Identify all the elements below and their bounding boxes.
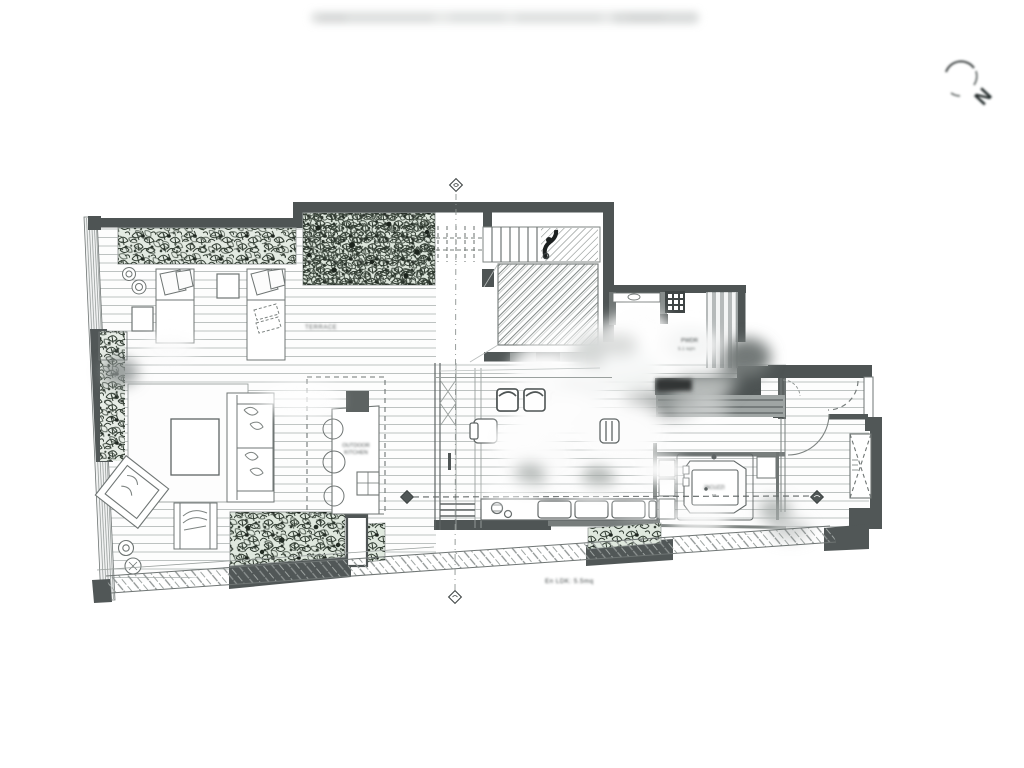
svg-text:5.1 sqm: 5.1 sqm <box>678 346 695 352</box>
svg-text:JACUZZI: JACUZZI <box>703 485 724 491</box>
svg-text:OUTDOOR: OUTDOOR <box>342 443 370 449</box>
svg-text:W: W <box>712 493 717 498</box>
svg-text:En LDK: 5.5mq: En LDK: 5.5mq <box>545 578 594 585</box>
svg-text:KITCHEN: KITCHEN <box>344 450 368 456</box>
svg-text:PWDR: PWDR <box>681 338 698 344</box>
svg-text:TERRACE: TERRACE <box>305 325 337 331</box>
